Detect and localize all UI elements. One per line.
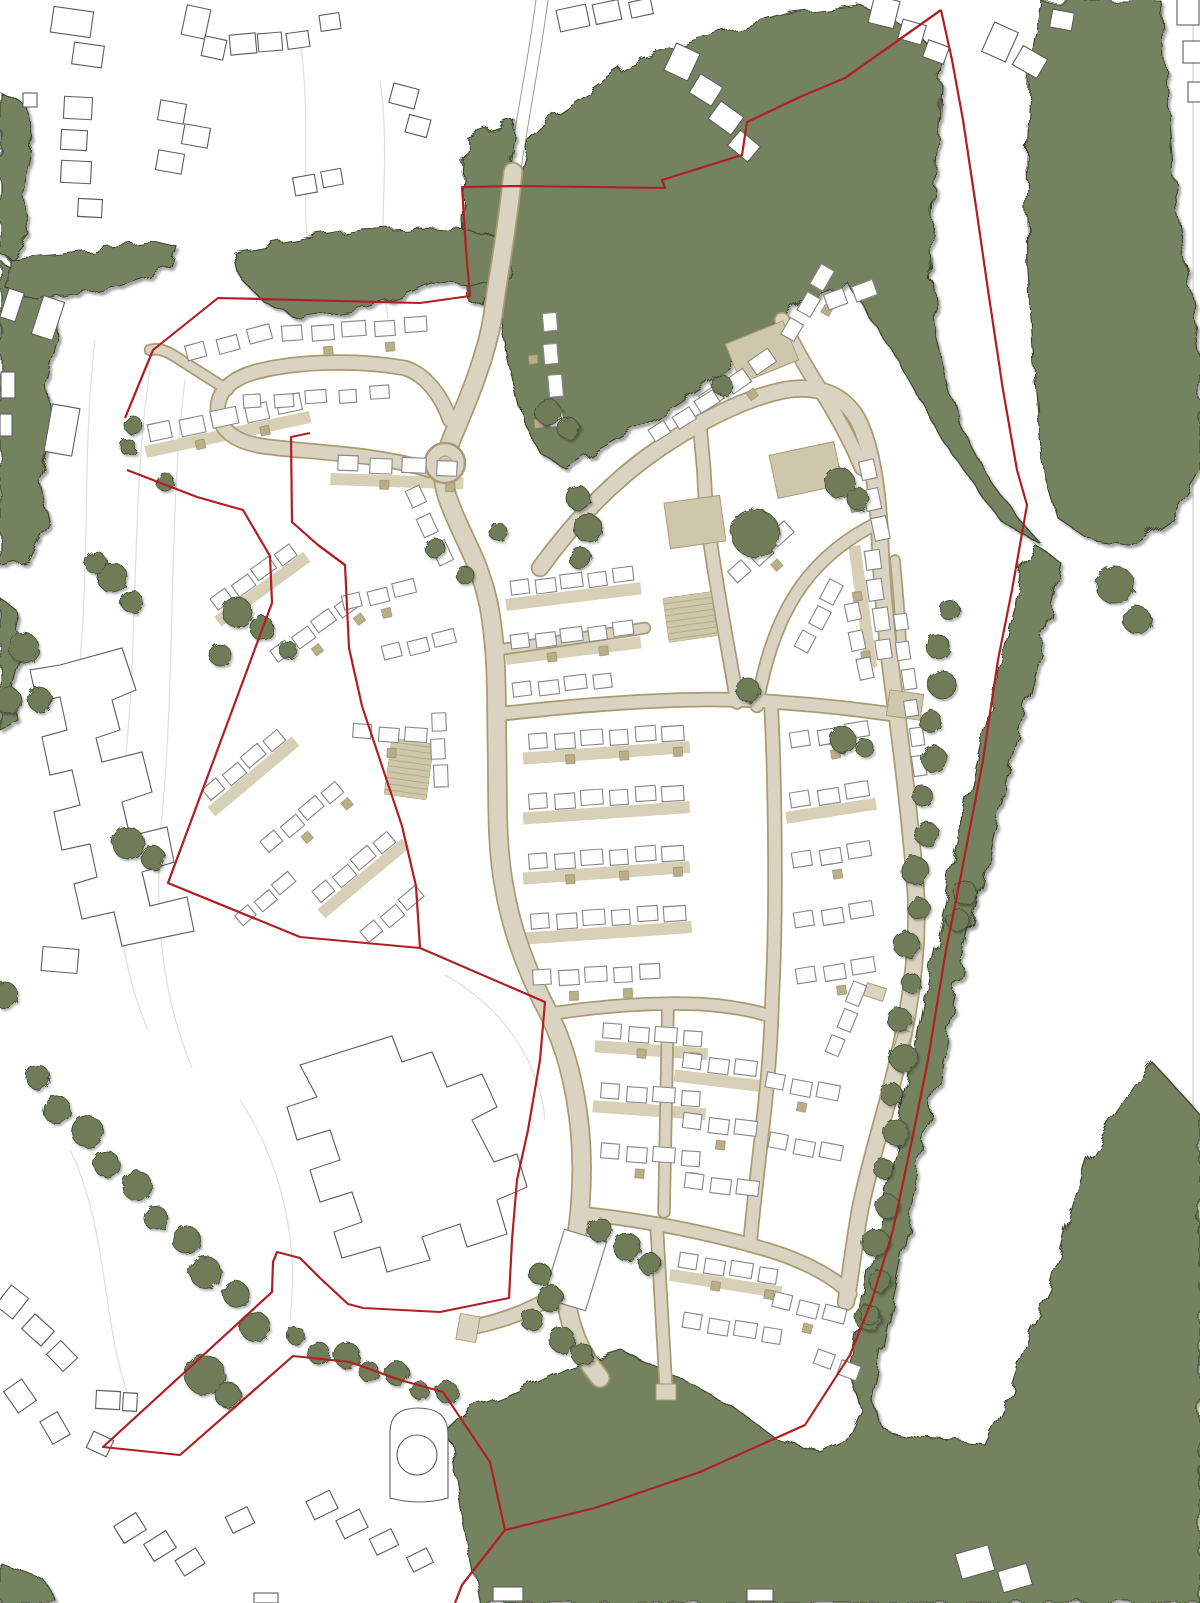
tree xyxy=(521,1309,543,1331)
tree xyxy=(921,746,947,772)
house xyxy=(733,1320,757,1338)
house xyxy=(859,459,878,481)
tree xyxy=(72,1116,104,1148)
house xyxy=(281,325,302,341)
existing-building xyxy=(493,1587,523,1601)
tree xyxy=(124,416,142,434)
existing-building xyxy=(72,42,105,68)
tree xyxy=(880,1083,902,1105)
existing-building xyxy=(747,1589,773,1601)
tree xyxy=(919,710,941,732)
garage xyxy=(565,754,575,764)
house xyxy=(609,849,628,865)
house xyxy=(661,845,684,861)
house xyxy=(311,325,334,341)
garage xyxy=(547,652,557,662)
house xyxy=(678,1252,698,1270)
garage xyxy=(381,607,392,618)
house xyxy=(866,578,884,601)
existing-building xyxy=(157,100,186,124)
tree xyxy=(901,973,921,993)
tree xyxy=(889,1044,917,1072)
house xyxy=(681,1091,700,1107)
tree xyxy=(308,1342,330,1364)
garage xyxy=(619,871,629,881)
house xyxy=(582,909,605,925)
house xyxy=(588,625,608,641)
house xyxy=(593,673,613,689)
house xyxy=(844,602,861,622)
garage xyxy=(323,346,333,356)
existing-building xyxy=(286,31,310,50)
tree xyxy=(0,687,21,713)
existing-building xyxy=(181,124,210,148)
house xyxy=(768,1132,789,1150)
existing-building xyxy=(201,36,227,60)
tree xyxy=(121,591,143,613)
existing-building xyxy=(254,1593,278,1603)
tree xyxy=(112,827,144,859)
existing-building xyxy=(257,32,282,52)
tree xyxy=(489,523,507,541)
house xyxy=(904,699,919,717)
tree xyxy=(830,727,856,753)
garage xyxy=(599,646,609,656)
existing-building xyxy=(319,13,341,32)
tree xyxy=(847,488,869,510)
tree xyxy=(120,439,136,455)
garage xyxy=(619,751,629,761)
house xyxy=(823,963,846,981)
house xyxy=(734,1119,758,1137)
house xyxy=(431,739,446,759)
tree xyxy=(882,1119,908,1145)
tree xyxy=(1123,606,1151,634)
house xyxy=(370,458,393,474)
tree xyxy=(926,635,950,659)
site-plan-map xyxy=(0,0,1200,1603)
house xyxy=(404,727,427,743)
garage xyxy=(673,747,683,757)
house xyxy=(437,461,458,477)
house xyxy=(847,841,872,859)
tree xyxy=(901,856,929,884)
house xyxy=(560,626,584,643)
house xyxy=(661,785,684,801)
tree xyxy=(144,1206,168,1230)
house xyxy=(821,907,844,925)
existing-building xyxy=(123,1393,138,1412)
tree xyxy=(189,1256,221,1288)
tree xyxy=(913,786,933,806)
house xyxy=(864,549,881,570)
masterplan-svg xyxy=(0,0,1200,1603)
house xyxy=(612,620,634,636)
garage xyxy=(836,985,846,995)
garage xyxy=(802,1323,813,1334)
house xyxy=(305,389,327,403)
house xyxy=(611,909,630,925)
existing-building xyxy=(60,129,87,150)
tree xyxy=(456,566,474,584)
house xyxy=(637,905,658,921)
house xyxy=(708,1118,730,1135)
tree xyxy=(874,1159,894,1179)
house xyxy=(528,793,547,809)
garage xyxy=(764,1289,774,1299)
tree xyxy=(222,597,252,627)
garage xyxy=(387,748,397,758)
house xyxy=(683,1031,702,1047)
garage xyxy=(710,1281,720,1291)
house xyxy=(635,725,656,741)
garage xyxy=(832,869,842,879)
tree xyxy=(571,1343,593,1365)
house xyxy=(338,455,359,471)
tree xyxy=(425,538,445,558)
tree xyxy=(173,1226,201,1254)
tree xyxy=(9,633,39,663)
existing-building xyxy=(96,1390,121,1409)
garage xyxy=(380,480,389,489)
house xyxy=(564,674,588,691)
house xyxy=(895,641,910,661)
house xyxy=(434,765,449,787)
garage xyxy=(635,1169,645,1179)
garage xyxy=(446,482,455,491)
garage xyxy=(673,867,683,877)
house xyxy=(682,1052,702,1069)
house xyxy=(538,680,560,696)
house xyxy=(729,1260,753,1278)
tree xyxy=(549,1327,575,1353)
tree xyxy=(223,1281,249,1307)
house xyxy=(580,729,603,745)
tree xyxy=(529,1263,551,1285)
site-plan-page xyxy=(0,0,1200,1603)
tree xyxy=(908,898,930,920)
existing-building xyxy=(78,198,103,217)
existing-building xyxy=(1050,9,1075,31)
tree xyxy=(557,417,579,439)
tree xyxy=(915,822,939,846)
house xyxy=(555,793,576,809)
tree xyxy=(28,688,52,712)
house xyxy=(661,725,684,741)
house xyxy=(682,1312,702,1330)
garage xyxy=(565,874,575,884)
existing-building xyxy=(229,33,257,55)
garage xyxy=(260,425,271,436)
house xyxy=(819,847,842,865)
house xyxy=(528,853,547,869)
house xyxy=(374,320,395,336)
house xyxy=(580,849,603,865)
house xyxy=(339,389,357,403)
house xyxy=(851,957,876,975)
house xyxy=(341,320,366,337)
house xyxy=(533,969,552,985)
tree xyxy=(731,509,779,557)
house xyxy=(758,1267,778,1285)
existing-building xyxy=(321,168,343,187)
tree xyxy=(279,641,297,659)
house xyxy=(909,727,924,747)
house xyxy=(789,730,810,748)
house xyxy=(560,572,584,589)
house xyxy=(682,1112,702,1129)
house xyxy=(378,727,399,742)
house xyxy=(654,1027,677,1043)
house xyxy=(557,913,578,929)
existing-building xyxy=(41,946,79,973)
existing-building xyxy=(293,174,318,196)
garage xyxy=(715,1140,725,1150)
existing-building xyxy=(155,150,184,174)
house xyxy=(684,1172,704,1189)
existing-building xyxy=(63,96,92,119)
house xyxy=(626,1087,647,1103)
house xyxy=(370,385,390,399)
house xyxy=(243,394,261,408)
house xyxy=(795,966,816,984)
tree xyxy=(43,1096,71,1124)
tree xyxy=(613,1233,641,1261)
house xyxy=(875,639,892,660)
house xyxy=(790,1079,812,1098)
existing-building xyxy=(1177,0,1199,25)
tree xyxy=(712,375,732,395)
tree xyxy=(856,739,874,757)
house xyxy=(432,713,447,731)
house xyxy=(528,733,547,749)
house xyxy=(791,850,812,868)
house xyxy=(663,905,686,921)
house xyxy=(588,571,608,587)
house xyxy=(793,910,814,928)
tree xyxy=(887,1007,911,1031)
tree xyxy=(736,678,760,702)
tree xyxy=(574,514,602,542)
existing-building xyxy=(1188,82,1200,102)
house xyxy=(901,668,917,690)
existing-building xyxy=(0,414,12,436)
house xyxy=(548,374,564,397)
house xyxy=(510,633,530,649)
tree xyxy=(122,1171,152,1201)
tree xyxy=(566,486,590,510)
house xyxy=(817,787,840,805)
tree xyxy=(1096,566,1134,604)
house xyxy=(652,1087,675,1103)
tree xyxy=(588,1218,612,1242)
house xyxy=(789,790,810,808)
house xyxy=(402,457,427,473)
house xyxy=(710,1178,732,1195)
house xyxy=(584,966,607,982)
house xyxy=(580,789,603,805)
house xyxy=(614,967,633,983)
house xyxy=(609,729,628,745)
tree xyxy=(535,399,561,425)
garage xyxy=(852,591,862,601)
house xyxy=(609,789,628,805)
tree xyxy=(26,1065,50,1089)
tree xyxy=(209,644,231,666)
house xyxy=(639,963,660,979)
tree xyxy=(940,600,960,620)
house xyxy=(872,607,890,632)
tree xyxy=(894,932,920,958)
house xyxy=(542,312,558,331)
tree xyxy=(85,552,107,574)
tree xyxy=(287,1327,305,1345)
house xyxy=(543,343,559,364)
tree xyxy=(569,547,591,569)
garage xyxy=(195,439,206,450)
tree xyxy=(93,1151,119,1177)
house xyxy=(603,1023,622,1039)
house xyxy=(734,1059,758,1077)
house xyxy=(845,781,870,799)
garage xyxy=(637,1049,647,1059)
garage xyxy=(623,988,632,997)
tree xyxy=(537,1285,563,1311)
existing-building xyxy=(1,372,15,398)
house xyxy=(893,613,908,631)
house xyxy=(612,566,634,582)
house xyxy=(703,1258,725,1276)
existing-building xyxy=(23,93,37,107)
house xyxy=(535,578,557,594)
house xyxy=(635,785,656,801)
house xyxy=(626,1147,647,1163)
existing-building xyxy=(1183,41,1200,63)
house xyxy=(404,316,427,332)
house xyxy=(762,1327,782,1345)
house xyxy=(530,913,549,929)
house xyxy=(274,394,294,408)
house xyxy=(559,970,580,986)
house xyxy=(601,1083,620,1099)
house xyxy=(765,1072,786,1090)
house xyxy=(628,1027,649,1043)
house xyxy=(708,1058,730,1075)
garage xyxy=(528,355,538,365)
house xyxy=(555,733,576,749)
house xyxy=(601,1143,620,1159)
house xyxy=(736,1179,760,1197)
house xyxy=(510,579,530,595)
existing-building xyxy=(50,6,93,37)
tree xyxy=(141,846,165,870)
garage xyxy=(569,991,578,1000)
house xyxy=(535,632,557,648)
garage xyxy=(796,1102,807,1113)
house xyxy=(652,1147,675,1163)
house xyxy=(681,1151,700,1167)
tree xyxy=(928,671,956,699)
existing-building xyxy=(60,160,91,184)
house xyxy=(555,853,576,869)
tree xyxy=(639,1253,661,1275)
house xyxy=(635,845,656,861)
house xyxy=(849,901,874,919)
house xyxy=(512,681,532,697)
garage xyxy=(385,342,395,352)
house xyxy=(793,1139,815,1158)
house xyxy=(707,1318,729,1336)
